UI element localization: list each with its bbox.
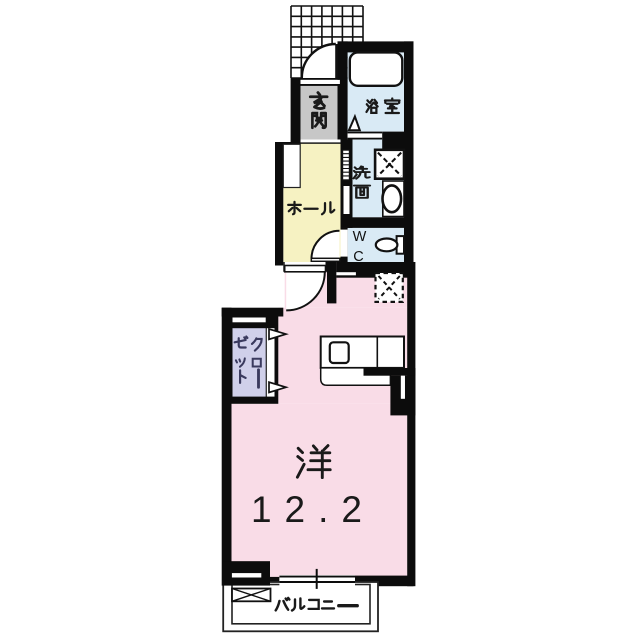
svg-text:12.2: 12.2 (251, 489, 375, 530)
svg-text:W: W (353, 229, 367, 245)
svg-text:C: C (353, 249, 363, 265)
